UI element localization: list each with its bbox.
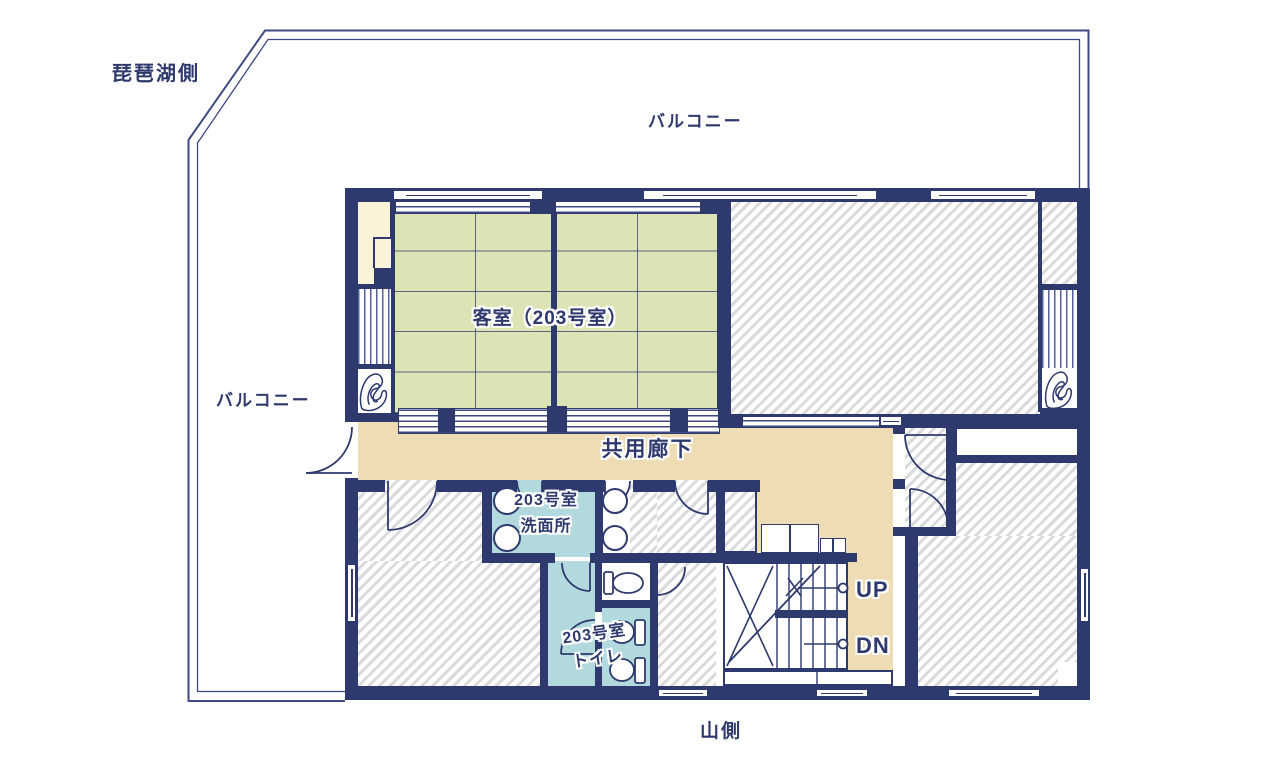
wall (595, 480, 603, 561)
balcony-left-label: バルコニー (216, 386, 311, 411)
wall-pier (438, 408, 455, 432)
locker-box-small (820, 538, 833, 553)
staircase-box (723, 562, 848, 670)
window (658, 689, 708, 697)
balcony-door (306, 427, 352, 473)
balcony-top-label: バルコニー (648, 107, 743, 132)
wall-thin (1040, 408, 1077, 414)
wall (540, 557, 548, 686)
wall (905, 536, 918, 686)
lower-right-room-a (956, 462, 1077, 536)
window (948, 689, 1040, 697)
closet-band (956, 428, 1083, 456)
stairs-down-label: DN (856, 633, 890, 659)
lower-left-room-a (358, 480, 482, 561)
wall-thin (358, 364, 391, 369)
door-gap (880, 416, 902, 426)
sliding-door-band (742, 416, 880, 428)
wall (650, 557, 658, 686)
closet-shelf-stripes-right (1042, 290, 1077, 368)
window (930, 190, 1036, 200)
floor-plan: 琵琶湖側 バルコニー バルコニー 山側 客室（203号室） 共用廊下 203号室… (0, 0, 1261, 757)
wall-pier (547, 406, 567, 432)
wall-pier (670, 408, 688, 432)
wall-thin (391, 202, 395, 414)
ornament-bg-left (358, 369, 391, 413)
window (643, 190, 877, 200)
washroom-label-line2: 洗面所 (498, 514, 594, 540)
wall (716, 480, 723, 562)
room-corner-notch (1058, 662, 1077, 686)
wall (1077, 188, 1090, 700)
locker-box (790, 524, 819, 553)
stair-landing (723, 670, 893, 686)
corridor-right (718, 428, 893, 480)
corridor-label: 共用廊下 (560, 433, 735, 463)
locker-box-small (833, 538, 846, 553)
wall (345, 480, 385, 492)
adjacent-room-right (731, 202, 1038, 414)
wall (633, 480, 675, 492)
window (347, 564, 356, 622)
right-column-hatch (1042, 202, 1077, 284)
window (393, 190, 543, 200)
wall (893, 527, 905, 536)
wall (893, 479, 905, 489)
closet-shelf-stripes-left (358, 289, 391, 364)
lower-left-room-b (358, 561, 540, 686)
locker-box (761, 524, 790, 553)
wall (946, 415, 956, 536)
wall (482, 480, 492, 561)
tokonoma-step (374, 268, 391, 284)
stair-closet (723, 482, 757, 553)
mountain-side-label: 山側 (700, 716, 742, 743)
ornament-bg-right (1042, 368, 1077, 410)
wall (905, 527, 955, 536)
wall (345, 413, 398, 422)
wall (718, 202, 731, 428)
wall-thin (1040, 284, 1077, 290)
hall-hatch (657, 480, 716, 686)
washroom-label: 203号室 洗面所 (498, 488, 594, 540)
wall (345, 188, 358, 420)
vestibule (905, 428, 946, 536)
lower-right-room-b (918, 536, 1077, 686)
wall (946, 455, 1083, 463)
wall-thin (1038, 202, 1042, 412)
wall-thin (358, 284, 391, 289)
wall (595, 600, 657, 608)
wall (716, 553, 857, 562)
window (816, 689, 868, 697)
washroom-label-line1: 203号室 (498, 488, 594, 514)
guest-room-label: 客室（203号室） (465, 303, 635, 330)
stairs-up-label: UP (856, 577, 889, 603)
lake-side-label: 琵琶湖側 (112, 57, 200, 86)
window (1080, 568, 1089, 622)
